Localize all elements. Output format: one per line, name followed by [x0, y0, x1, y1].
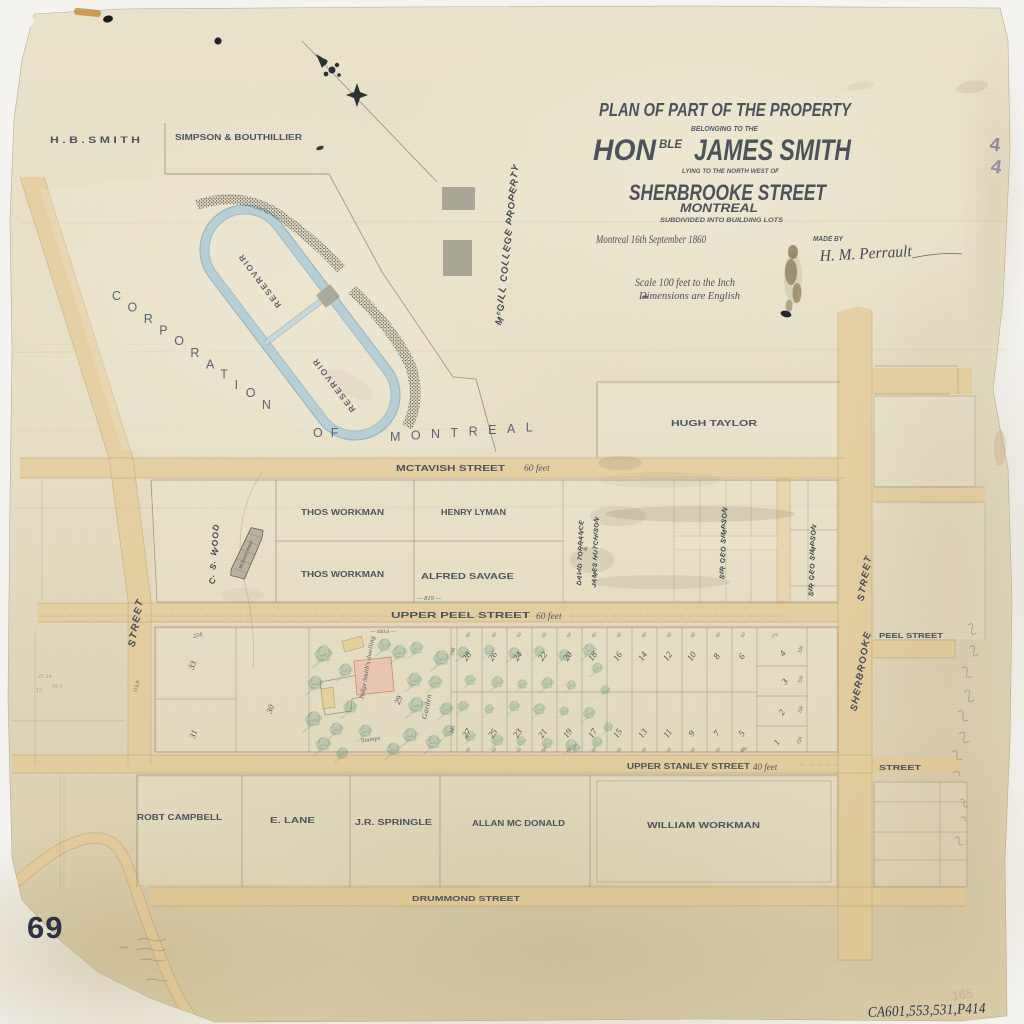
svg-text:— 819 —: — 819 — [416, 595, 442, 602]
svg-text:STREET: STREET [879, 763, 922, 772]
svg-text:THOS WORKMAN: THOS WORKMAN [301, 508, 384, 517]
svg-text:LYING TO THE NORTH WEST OF: LYING TO THE NORTH WEST OF [682, 168, 780, 175]
svg-text:BELONGING TO THE: BELONGING TO THE [691, 126, 758, 133]
svg-text:25 14: 25 14 [38, 673, 52, 680]
svg-text:UPPER PEEL STREET: UPPER PEEL STREET [391, 610, 531, 620]
svg-text:ALLAN MC DONALD: ALLAN MC DONALD [472, 819, 565, 828]
svg-text:165: 165 [951, 986, 974, 1003]
svg-text:E. LANE: E. LANE [270, 816, 316, 825]
svg-text:ALFRED SAVAGE: ALFRED SAVAGE [421, 571, 514, 581]
svg-text:ROBT CAMPBELL: ROBT CAMPBELL [137, 812, 222, 822]
svg-text:MONTREAL: MONTREAL [680, 203, 758, 215]
svg-text:DRUMMOND STREET: DRUMMOND STREET [412, 894, 521, 903]
svg-text:JAMES SMITH: JAMES SMITH [694, 134, 852, 167]
svg-text:Montreal 16th September 1860: Montreal 16th September 1860 [595, 232, 706, 246]
svg-text:J.R. SPRINGLE: J.R. SPRINGLE [355, 818, 433, 827]
svg-text:OF: OF [313, 426, 346, 440]
svg-text:HENRY LYMAN: HENRY LYMAN [441, 508, 506, 517]
svg-text:Dimensions are English: Dimensions are English [638, 290, 740, 302]
svg-text:40 feet: 40 feet [753, 762, 778, 772]
svg-text:HUGH TAYLOR: HUGH TAYLOR [671, 418, 757, 428]
svg-text:12: 12 [36, 688, 42, 694]
svg-text:SUBDIVIDED INTO BUILDING LOTS: SUBDIVIDED INTO BUILDING LOTS [660, 217, 783, 224]
svg-text:BLE: BLE [659, 137, 683, 151]
svg-text:34 1: 34 1 [51, 683, 63, 690]
svg-text:H . B . S M I T H: H . B . S M I T H [50, 135, 140, 145]
svg-text:SIMPSON & BOUTHILLIER: SIMPSON & BOUTHILLIER [175, 133, 302, 142]
svg-text:PLAN OF PART OF THE PROPERTY: PLAN OF PART OF THE PROPERTY [599, 99, 852, 120]
svg-text:MADE BY: MADE BY [813, 236, 844, 243]
svg-text:UPPER STANLEY STREET: UPPER STANLEY STREET [627, 762, 750, 771]
svg-text:HON: HON [593, 134, 657, 167]
svg-text:PEEL STREET: PEEL STREET [879, 631, 944, 640]
svg-text:60 feet: 60 feet [524, 463, 550, 474]
svg-text:THOS WORKMAN: THOS WORKMAN [301, 570, 384, 579]
svg-text:MCTAVISH STREET: MCTAVISH STREET [396, 464, 505, 473]
svg-text:SHERBROOKE STREET: SHERBROOKE STREET [629, 180, 828, 205]
svg-text:Scale 100 feet to the Inch: Scale 100 feet to the Inch [635, 277, 735, 289]
svg-text:69: 69 [27, 910, 63, 945]
svg-text:— 660.6 —: — 660.6 — [370, 629, 396, 635]
svg-text:WILLIAM WORKMAN: WILLIAM WORKMAN [647, 820, 760, 830]
svg-text:60 feet: 60 feet [536, 611, 562, 622]
